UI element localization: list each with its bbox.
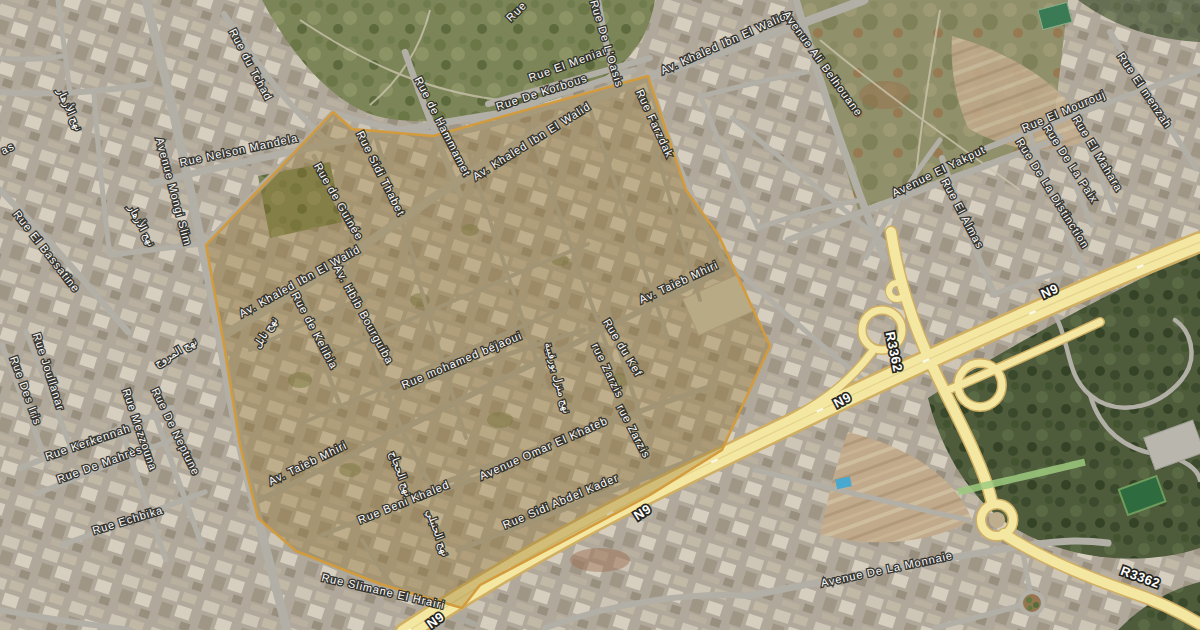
bare-soil-patch bbox=[570, 548, 630, 572]
map-canvas[interactable]: Rue du TchadAvenue Mongi SlimRue Nelson … bbox=[0, 0, 1200, 630]
roundabout-center bbox=[989, 512, 1005, 528]
tree-roundabout bbox=[1021, 592, 1043, 614]
satellite-map[interactable]: Rue du TchadAvenue Mongi SlimRue Nelson … bbox=[0, 0, 1200, 630]
